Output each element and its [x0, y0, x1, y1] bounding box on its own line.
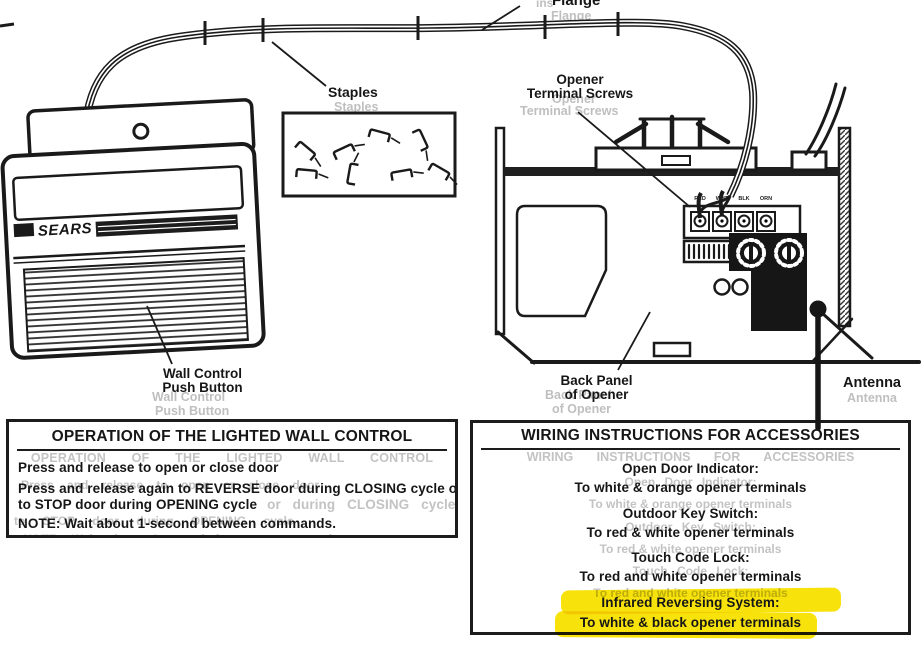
wall-control-body [2, 143, 264, 358]
wiring-heading: Touch Code Lock: [473, 550, 908, 565]
operation-line-ghost-tail: or during CLOSING cycle or [267, 497, 458, 512]
wiring-heading: Open Door Indicator: [473, 461, 908, 476]
terminal-screw [713, 212, 731, 231]
brand-label: SEARS [37, 220, 92, 240]
operation-note-ghost: NOTE: Wait about 1-second between comman… [23, 532, 342, 538]
terminal-color-label-red: RED [692, 196, 708, 202]
wall-control-label-ghost: Push Button [155, 404, 229, 418]
operation-line: to STOP door during OPENING cycleor duri… [18, 497, 458, 512]
terminal-color-label-orn: ORN [758, 196, 774, 202]
panel-slot [654, 343, 690, 356]
panel-right-rail [839, 128, 850, 326]
wiring-detail: To red & white opener terminals [473, 525, 908, 540]
operation-box-title: OPERATION OF THE LIGHTED WALL CONTROL [9, 428, 455, 446]
terminal-color-label-wht: WHT [714, 196, 730, 202]
wall-control-mounting-plate [28, 99, 254, 163]
indicator-window [13, 166, 243, 220]
mounting-bracket [616, 117, 728, 150]
staples-label-ghost: Staples [334, 100, 378, 114]
back-panel-label: of Opener [534, 387, 659, 402]
operation-instructions-box: OPERATION OF THE LIGHTED WALL CONTROL OP… [6, 419, 458, 538]
wiring-heading: Outdoor Key Switch: [473, 506, 908, 521]
scanned-manual-page: SEARS ins Flange Flange Staples Staples … [0, 0, 922, 653]
brand-logo-block [14, 223, 35, 237]
bell-wire [86, 12, 753, 218]
brand-stripe-band [96, 214, 239, 236]
wiring-box-title: WIRING INSTRUCTIONS FOR ACCESSORIES [473, 427, 908, 445]
flange-label: Flange [552, 0, 600, 9]
panel-button [715, 280, 730, 295]
rotary-dial [738, 240, 764, 266]
terminal-screw [757, 212, 775, 231]
wall-control-illustration: SEARS [0, 99, 264, 358]
wire-fragment [0, 24, 14, 26]
antenna-mount [810, 301, 827, 318]
code-switch-module [729, 233, 807, 331]
opener-terminal-screws-ghost: Terminal Screws [520, 104, 618, 118]
staples-label: Staples [328, 84, 378, 100]
terminal-screw [735, 212, 753, 231]
back-panel-label-ghost: of Opener [552, 402, 611, 416]
operation-line-text: to STOP door during OPENING cycle [18, 497, 257, 512]
leader-lines [147, 6, 690, 370]
panel-cutout [517, 206, 606, 316]
terminal-color-label-blk: BLK [736, 196, 752, 202]
back-panel-label: Back Panel [534, 373, 659, 388]
diagram-line-art: SEARS [0, 0, 922, 434]
wiring-instructions-box: WIRING INSTRUCTIONS FOR ACCESSORIES WIRI… [470, 420, 911, 635]
staples-box-illustration [283, 113, 460, 196]
mounting-hole [133, 124, 148, 139]
wiring-detail-highlighted: To white & black opener terminals [473, 615, 908, 630]
bracket-wire [815, 88, 845, 156]
wiring-detail: To red and white opener terminals [473, 569, 908, 584]
terminal-block [684, 206, 800, 238]
panel-button [733, 280, 748, 295]
panel-left-rail [496, 128, 504, 334]
flange-plate [596, 148, 756, 170]
antenna-label: Antenna [843, 375, 901, 391]
push-button-surface [24, 258, 248, 351]
flange-label-ghost: Flange [551, 9, 591, 23]
antenna-label-ghost: Antenna [847, 391, 897, 405]
opener-terminal-screws-label: Opener [505, 72, 655, 87]
title-underline [481, 448, 900, 450]
operation-line: Press and release again to REVERSE door … [18, 481, 458, 496]
title-underline [17, 449, 447, 451]
wall-control-label: Wall Control [140, 366, 265, 381]
bracket-wire [806, 84, 836, 154]
wiring-heading-highlighted: Infrared Reversing System: [473, 595, 908, 610]
panel-top-edge [504, 167, 840, 176]
terminal-screw [691, 212, 709, 231]
operation-line: Press and release to open or close door [18, 460, 279, 475]
opener-terminal-screws-label: Terminal Screws [505, 86, 655, 101]
right-bracket [792, 152, 826, 170]
operation-note: NOTE: Wait about 1-second between comman… [18, 516, 336, 531]
wall-control-label: Push Button [140, 380, 265, 395]
dip-switch [684, 241, 736, 262]
rotary-dial [776, 240, 802, 266]
wiring-detail: To white & orange opener terminals [473, 480, 908, 495]
